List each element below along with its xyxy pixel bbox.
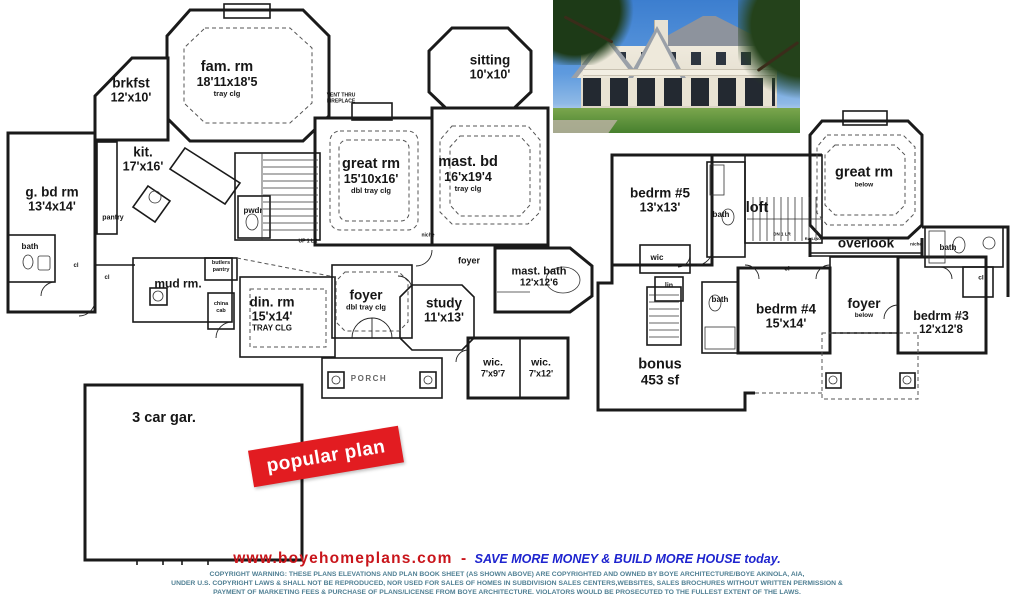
label-butlers-pantry: pantry xyxy=(213,268,230,274)
room-dims: 15'10x16' xyxy=(342,173,400,187)
room-name: loft xyxy=(746,201,769,217)
room-dims: 12'x10' xyxy=(111,92,152,106)
label-bath-mid: bath xyxy=(712,296,729,304)
label-wic: wic xyxy=(651,254,664,262)
first-floor-plan xyxy=(0,0,600,565)
room-name: 3 car gar. xyxy=(132,411,196,427)
label-china: china xyxy=(214,302,228,308)
room-label-porch: PORCH xyxy=(351,368,387,386)
room-label-bedrm-5: bedrm #5 13'x13' xyxy=(630,187,690,216)
label-up-stairs: UP 1 LR xyxy=(298,239,317,244)
label-fireplace: FIREPLACE xyxy=(327,99,355,104)
room-name: wic. xyxy=(481,357,505,369)
copyright-line-3: PAYMENT OF MARKETING FEES & PURCHASE OF … xyxy=(0,589,1014,598)
room-name: g. bd rm xyxy=(25,186,78,201)
room-label-mud-rm: mud rm. xyxy=(154,277,201,290)
room-name: great rm xyxy=(835,165,893,181)
room-label-brkfst: brkfst 12'x10' xyxy=(111,77,152,106)
label-niche: niche xyxy=(421,233,434,238)
room-note: below xyxy=(835,181,893,188)
website-link[interactable]: www.boyehomeplans.com xyxy=(233,550,452,567)
label-cl-2: cl xyxy=(104,275,109,281)
room-dims: 453 sf xyxy=(638,374,682,389)
label-foyer-small: foyer xyxy=(458,256,480,265)
room-dims: 7'x12' xyxy=(529,369,553,379)
room-dims: 7'x9'7 xyxy=(481,369,505,379)
room-label-bonus: bonus 453 sf xyxy=(638,358,682,389)
room-dims: 16'x19'4 xyxy=(438,171,498,185)
room-name: sitting xyxy=(470,54,511,69)
room-note: below xyxy=(847,312,880,319)
room-note: dbl tray clg xyxy=(346,303,386,311)
room-note: TRAY CLG xyxy=(249,324,294,333)
label-cl-1: cl xyxy=(73,263,78,269)
room-dims: 13'4x14' xyxy=(25,201,78,215)
room-name: bedrm #4 xyxy=(756,303,816,318)
room-label-wic-1: wic. 7'x9'7 xyxy=(481,357,505,378)
room-dims: 13'x13' xyxy=(630,202,690,216)
floor-plan-sheet: brkfst 12'x10' fam. rm 18'11x18'5 tray c… xyxy=(0,0,1014,600)
room-label-sitting: sitting 10'x10' xyxy=(470,54,511,83)
room-label-g-bd-rm: g. bd rm 13'4x14' xyxy=(25,186,78,215)
room-name: bedrm #5 xyxy=(630,187,690,202)
room-label-mast-bath: mast. bath 12'x12'6 xyxy=(511,265,566,288)
room-label-bedrm-4: bedrm #4 15'x14' xyxy=(756,303,816,332)
footer-tagline: SAVE MORE MONEY & BUILD MORE HOUSE today… xyxy=(475,552,781,566)
room-note: dbl tray clg xyxy=(342,187,400,195)
room-name: foyer xyxy=(847,297,880,312)
room-name: bonus xyxy=(638,358,682,374)
label-railing: RAILING xyxy=(805,237,821,241)
room-dims: 18'11x18'5 xyxy=(197,76,258,90)
label-butlers: butlers xyxy=(212,261,230,267)
room-note: tray clg xyxy=(438,185,498,193)
room-name: foyer xyxy=(346,288,386,303)
room-name: mast. bd xyxy=(438,155,498,171)
copyright-line-1: COPYRIGHT WARNING: THESE PLANS ELEVATION… xyxy=(0,571,1014,580)
label-china-cab: cab xyxy=(216,309,225,315)
room-name: din. rm xyxy=(249,295,294,310)
label-bath-right: bath xyxy=(940,244,957,252)
room-label-wic-2: wic. 7'x12' xyxy=(529,357,553,378)
room-label-mast-bd: mast. bd 16'x19'4 tray clg xyxy=(438,155,498,193)
room-label-great-rm-below: great rm below xyxy=(835,165,893,188)
photo-tree-branch-right xyxy=(738,0,800,105)
room-name: wic. xyxy=(529,357,553,369)
label-pwdr: pwdr xyxy=(243,207,262,215)
copyright-line-2: UNDER U.S. COPYRIGHT LAWS & SHALL NOT BE… xyxy=(0,580,1014,589)
room-name: fam. rm xyxy=(197,60,258,76)
footer-tagline-row: www.boyehomeplans.com - SAVE MORE MONEY … xyxy=(0,550,1014,568)
copyright-block: COPYRIGHT WARNING: THESE PLANS ELEVATION… xyxy=(0,571,1014,597)
room-label-fam-rm: fam. rm 18'11x18'5 tray clg xyxy=(197,60,258,98)
label-niche-2: niche xyxy=(910,243,922,248)
label-bath-upper: bath xyxy=(713,211,730,219)
room-name: study xyxy=(424,297,464,312)
room-name: bedrm #3 xyxy=(913,310,969,324)
room-label-overlook: overlook xyxy=(838,237,894,252)
room-dims: 17'x16' xyxy=(123,161,164,175)
room-dims: 10'x10' xyxy=(470,69,511,83)
label-cl-b: cl xyxy=(978,276,983,283)
room-dims: 11'x13' xyxy=(424,312,464,326)
footer-separator: - xyxy=(457,550,470,567)
room-name: kit. xyxy=(123,146,164,161)
label-dn-stairs: DN 1 LR xyxy=(773,233,791,238)
photo-driveway xyxy=(553,120,618,133)
room-label-great-rm: great rm 15'10x16' dbl tray clg xyxy=(342,157,400,195)
room-dims: 12'x12'8 xyxy=(913,324,969,337)
room-label-garage: 3 car gar. xyxy=(132,411,196,427)
room-label-study: study 11'x13' xyxy=(424,297,464,326)
room-name: mast. bath xyxy=(511,265,566,277)
label-bath: bath xyxy=(22,243,39,251)
room-note: tray clg xyxy=(197,90,258,98)
room-dims: 12'x12'6 xyxy=(511,278,566,289)
room-label-loft: loft xyxy=(746,201,769,217)
room-label-din-rm: din. rm 15'x14' TRAY CLG xyxy=(249,295,294,332)
room-name: great rm xyxy=(342,157,400,173)
room-dims: 15'x14' xyxy=(249,310,294,324)
room-name: PORCH xyxy=(351,374,387,383)
label-cl-a: cl xyxy=(784,267,789,274)
room-label-foyer: foyer dbl tray clg xyxy=(346,288,386,311)
room-label-foyer-below: foyer below xyxy=(847,297,880,319)
room-label-kit: kit. 17'x16' xyxy=(123,146,164,175)
room-name: brkfst xyxy=(111,77,152,92)
house-photo xyxy=(553,0,800,133)
label-pantry: pantry xyxy=(102,214,123,221)
room-name: overlook xyxy=(838,237,894,252)
room-dims: 15'x14' xyxy=(756,318,816,332)
room-name: mud rm. xyxy=(154,277,201,290)
label-lin: lin xyxy=(665,282,673,289)
room-label-bedrm-3: bedrm #3 12'x12'8 xyxy=(913,310,969,336)
